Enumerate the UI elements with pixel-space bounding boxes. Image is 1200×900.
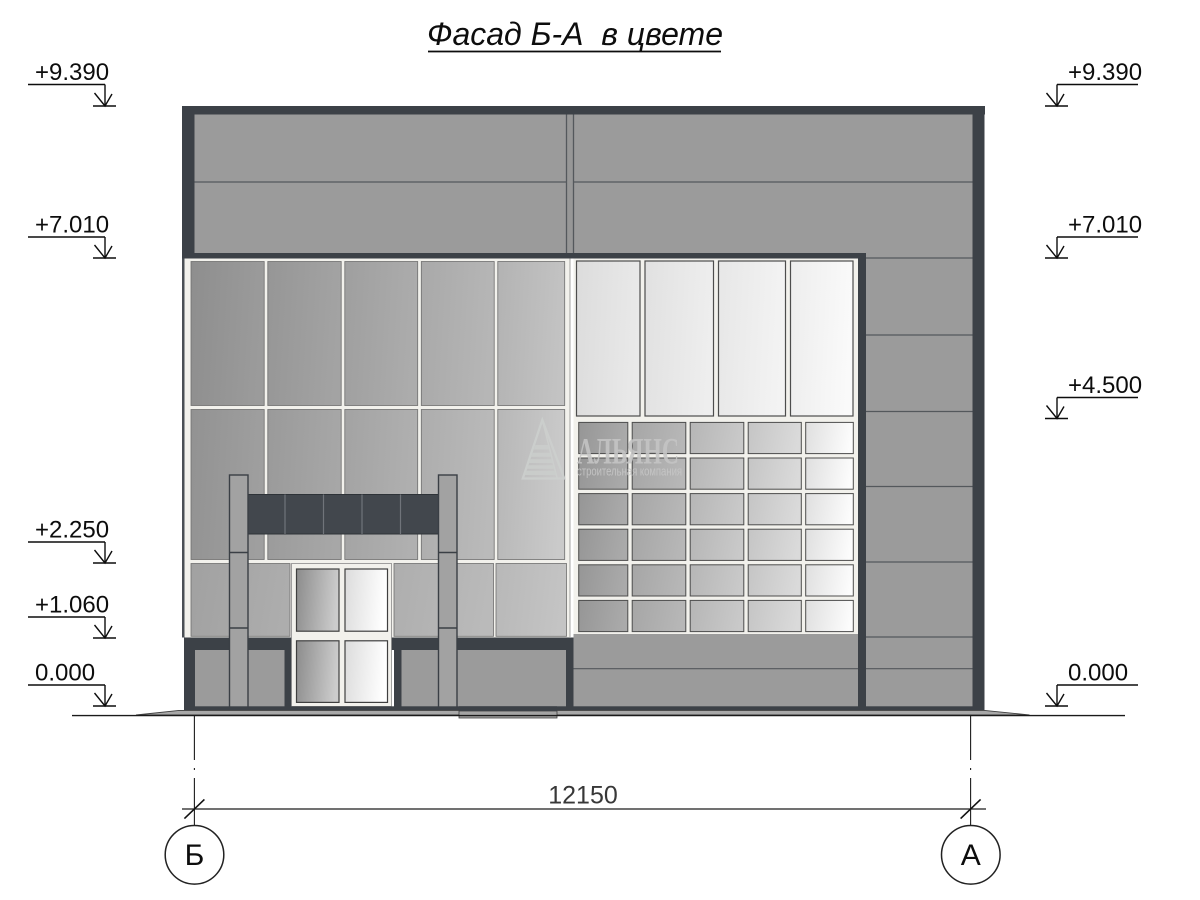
svg-text:12150: 12150: [548, 782, 618, 810]
svg-text:строительная компания: строительная компания: [577, 464, 682, 479]
svg-text:+9.390: +9.390: [35, 59, 109, 86]
svg-text:Б: Б: [185, 839, 205, 872]
svg-text:А: А: [961, 839, 981, 872]
svg-text:+1.060: +1.060: [35, 592, 109, 619]
svg-text:0.000: 0.000: [35, 660, 95, 687]
svg-text:+7.010: +7.010: [1068, 212, 1142, 239]
svg-text:+7.010: +7.010: [35, 212, 109, 239]
svg-text:Фасад Б-А в цвете: Фасад Б-А в цвете: [427, 16, 723, 52]
svg-text:0.000: 0.000: [1068, 660, 1128, 687]
svg-text:+2.250: +2.250: [35, 517, 109, 544]
svg-text:+4.500: +4.500: [1068, 372, 1142, 399]
svg-text:+9.390: +9.390: [1068, 59, 1142, 86]
